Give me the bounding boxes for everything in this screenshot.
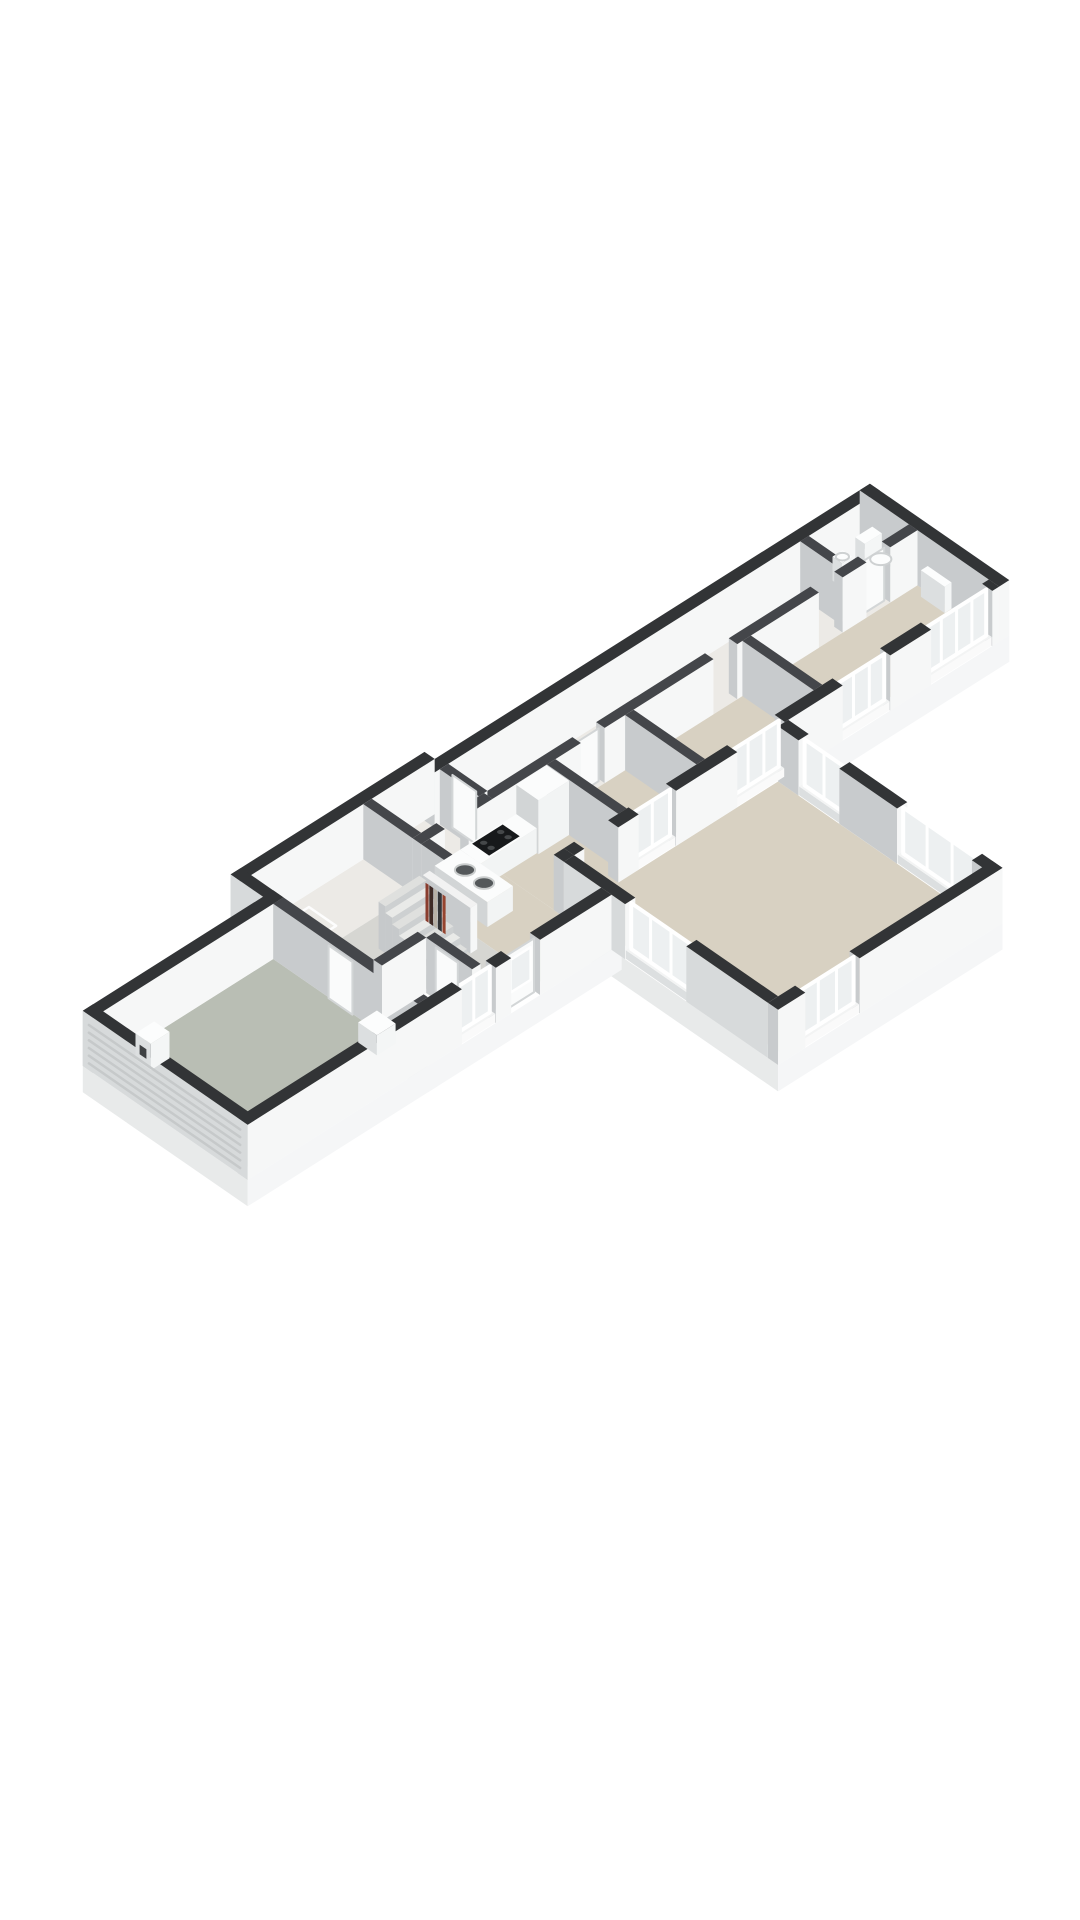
sink-bowl-2 <box>474 877 494 889</box>
toilet-bowl <box>870 553 891 565</box>
floorplan-figure <box>0 0 1080 1920</box>
floorplan-3d-render <box>0 0 1080 1920</box>
sink-bowl-1 <box>455 864 475 876</box>
washbasin-bowl <box>836 553 849 561</box>
wall-wing-front-2 <box>608 807 639 882</box>
page <box>0 0 1080 1920</box>
